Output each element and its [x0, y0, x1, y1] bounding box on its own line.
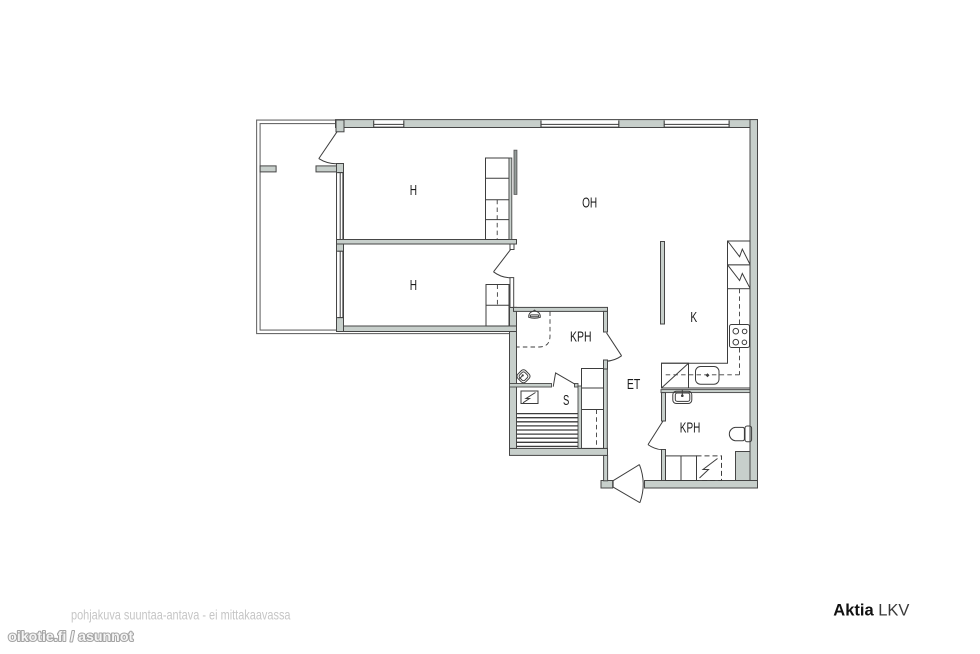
svg-text:KPH: KPH [570, 330, 592, 346]
svg-text:KPH: KPH [680, 421, 701, 437]
svg-text:S: S [563, 393, 569, 409]
svg-text:ET: ET [627, 377, 641, 393]
svg-text:pohjakuva suuntaa-antava - ei: pohjakuva suuntaa-antava - ei mittakaava… [71, 607, 291, 623]
svg-text:OH: OH [582, 196, 597, 212]
svg-text:H: H [410, 183, 417, 199]
svg-text:Aktia LKV: Aktia LKV [833, 601, 909, 619]
svg-text:oikotie.fi / asunnot: oikotie.fi / asunnot [8, 628, 133, 644]
svg-text:K: K [690, 310, 697, 326]
svg-text:H: H [410, 278, 417, 294]
